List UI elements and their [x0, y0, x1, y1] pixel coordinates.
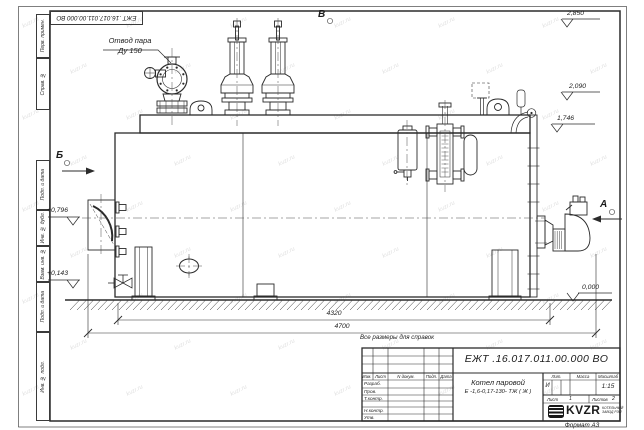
frame-label: Перв. примен.: [40, 19, 46, 52]
ground-line: [65, 300, 612, 310]
dimension-4700: 4700: [322, 323, 362, 330]
drawing-linework: [0, 0, 644, 430]
drain-valve: [108, 275, 132, 288]
burner-unit: [535, 196, 590, 251]
product-name-line2: Е -1,6-0,17-130- ТЖ ( Ж ): [453, 389, 543, 395]
top-fittings: [472, 83, 536, 133]
row-razrab: Разраб.: [364, 381, 381, 386]
dimension-4320: 4320: [314, 310, 354, 317]
sheets-value: 2: [612, 396, 615, 402]
format-note: Формат А3: [552, 422, 612, 429]
row-utv: Утв.: [364, 415, 375, 420]
col-header-data: Дата: [439, 374, 453, 379]
steam-outlet-label-line1: Отвод пара: [100, 36, 160, 45]
lifting-lug-left: [190, 101, 212, 115]
elevation-marks: [48, 19, 612, 301]
rear-flange-bolts: [528, 148, 540, 289]
frame-box-sprav: Справ. №: [36, 58, 50, 110]
steam-outlet-valve: [145, 57, 188, 113]
frame-label: Справ. №: [40, 72, 46, 95]
front-door-box: [88, 200, 126, 257]
frame-label: Взам. инв. №: [40, 248, 46, 280]
view-marker-b: Б: [56, 150, 63, 161]
row-prov: Пров.: [364, 389, 376, 394]
steam-outlet-label-line2: Ду 150: [100, 46, 160, 55]
sheets-label: Листов: [592, 397, 608, 402]
frame-label: Подп. и дата: [40, 169, 46, 200]
frame-label: Инв. № подл.: [40, 361, 46, 393]
centerlines: [82, 18, 545, 278]
col-header-list: Лист: [373, 374, 388, 379]
elevation-0143: +0,143: [47, 270, 68, 277]
frame-box-inv-dubl: Инв. № дубл.: [36, 210, 50, 246]
sheet-label: Лист: [547, 397, 558, 402]
frame-box-inv-podl: Инв. № подл.: [36, 332, 50, 421]
product-name-line1: Котел паровой: [455, 378, 541, 387]
level-gauge-vessel: [394, 126, 417, 181]
company-logo-text: KVZR: [566, 403, 600, 417]
company-name: КОТЕЛЬНЫЙ ЗАВОД РЭП: [602, 406, 623, 415]
elevation-2090: 2,090: [569, 83, 586, 90]
sheet-value: 1: [569, 396, 572, 402]
reference-note: Все размеры для справок: [360, 334, 434, 341]
elevation-0796: +0,796: [47, 207, 68, 214]
boiler-body: [115, 115, 537, 297]
drawing-sheet: kvzr.rukvzr.rukvzr.rukvzr.rukvzr.rukvzr.…: [0, 0, 644, 430]
frame-box-perv-primen: Перв. примен.: [36, 14, 50, 58]
company-logo-icon: [548, 405, 564, 418]
frame-box-podp-data-2: Подп. и дата: [36, 282, 50, 332]
col-header-doc: N докум.: [388, 374, 424, 379]
title-designation: ЕЖТ .16.017.011.00.000 ВО: [455, 353, 618, 365]
frame-box-podp-data-1: Подп. и дата: [36, 160, 50, 210]
boiler-supports: [132, 247, 521, 300]
view-marker-v: В: [318, 9, 325, 20]
frame-label: Инв. № дубл.: [40, 212, 46, 243]
company-name-line2: ЗАВОД РЭП: [602, 410, 623, 414]
row-nkontr: Н.контр.: [364, 408, 384, 413]
lit-value: И: [543, 383, 552, 389]
scale-header: Масштаб: [596, 374, 620, 379]
mass-header: Масса: [570, 374, 596, 379]
lifting-lug-right: [487, 99, 509, 115]
frame-label: Подп. и дата: [40, 291, 46, 322]
elevation-2850: 2,850: [567, 10, 584, 17]
row-tkontr: Т.контр.: [364, 396, 383, 401]
top-reference-stamp: ЕЖТ .16.017.011.00.000 ВО: [50, 11, 143, 25]
col-header-podp: Подп.: [424, 374, 439, 379]
scale-value: 1:15: [596, 383, 620, 390]
elevation-1746: 1,746: [557, 115, 574, 122]
elevation-0000: 0,000: [582, 284, 599, 291]
col-header-izm: Изм.: [361, 374, 373, 379]
lit-header: Лит.: [543, 374, 570, 379]
view-marker-a: А: [600, 199, 607, 210]
